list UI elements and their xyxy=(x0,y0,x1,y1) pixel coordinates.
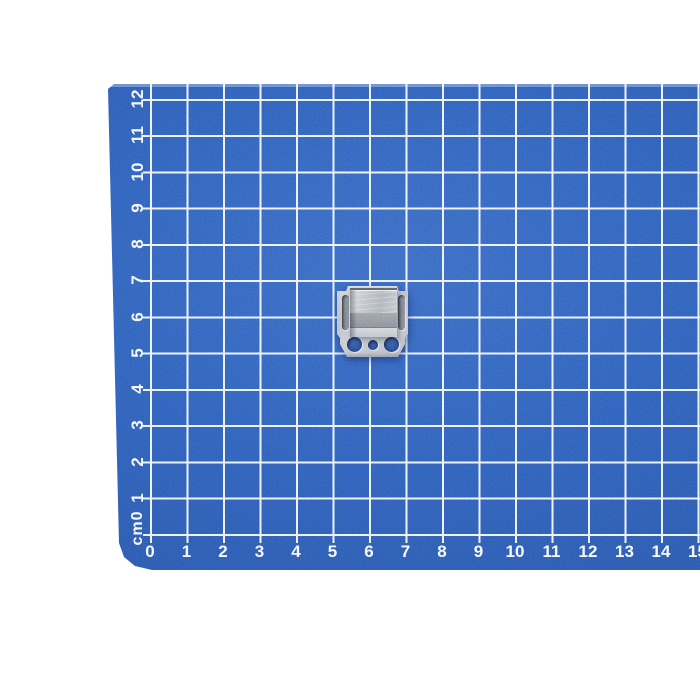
ruler-bottom-number: 7 xyxy=(391,542,421,562)
ruler-bottom-number: 1 xyxy=(172,542,202,562)
ruler-left-ticks xyxy=(143,99,150,537)
ruler-bottom-number: 2 xyxy=(208,542,238,562)
ruler-unit-label: cm0 xyxy=(128,501,148,555)
clip-hole-middle xyxy=(368,340,378,350)
ruler-bottom-number: 13 xyxy=(610,542,640,562)
clip-raised-box xyxy=(350,288,397,337)
cutting-mat: 121110987654321 cm0 01234567891011121314… xyxy=(108,84,700,570)
grid-horizontal-lines xyxy=(150,99,700,537)
clip-box-bottom-lip xyxy=(350,327,397,337)
metal-clip xyxy=(337,286,408,357)
ruler-bottom-number: 11 xyxy=(537,542,567,562)
clip-hole-right xyxy=(384,337,399,352)
clip-box-top-face xyxy=(350,290,397,313)
ruler-bottom-number: 3 xyxy=(245,542,275,562)
ruler-bottom-number: 15 xyxy=(683,542,700,562)
clip-slot-right xyxy=(398,295,405,330)
ruler-bottom-number: 8 xyxy=(427,542,457,562)
clip-box-front-face xyxy=(350,313,397,327)
clip-slot-left xyxy=(342,295,349,330)
photo-canvas: 121110987654321 cm0 01234567891011121314… xyxy=(0,0,700,700)
ruler-bottom-ticks xyxy=(150,535,700,543)
ruler-bottom-number: 14 xyxy=(646,542,676,562)
ruler-bottom-number: 5 xyxy=(318,542,348,562)
ruler-bottom-number: 12 xyxy=(573,542,603,562)
clip-base-plate xyxy=(337,286,408,357)
clip-hole-left xyxy=(347,337,362,352)
ruler-bottom-number: 9 xyxy=(464,542,494,562)
ruler-bottom-number: 6 xyxy=(354,542,384,562)
ruler-bottom-number: 4 xyxy=(281,542,311,562)
ruler-bottom-number: 10 xyxy=(500,542,530,562)
